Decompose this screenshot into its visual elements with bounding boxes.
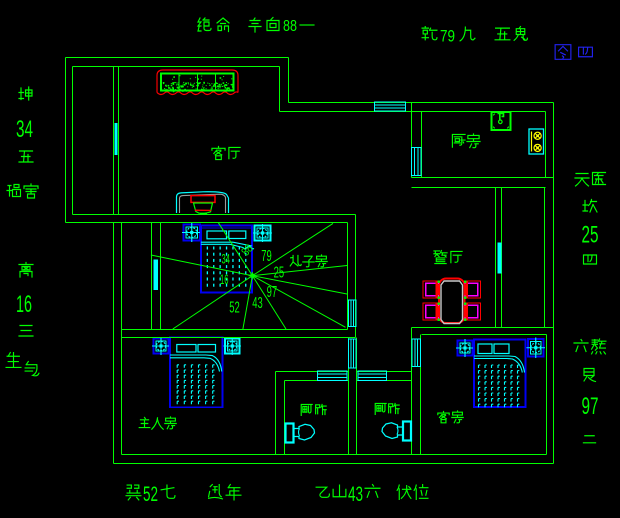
svg-text:25: 25: [274, 265, 285, 282]
svg-text:52: 52: [229, 300, 240, 317]
svg-text:52: 52: [143, 483, 158, 506]
svg-text:97: 97: [267, 284, 278, 301]
svg-text:88: 88: [283, 18, 297, 35]
svg-text:97: 97: [582, 393, 599, 420]
svg-text:34: 34: [222, 251, 231, 266]
svg-text:79: 79: [440, 28, 455, 46]
svg-text:16: 16: [16, 291, 32, 318]
svg-text:25: 25: [582, 222, 599, 249]
svg-text:79: 79: [261, 248, 272, 265]
svg-text:43: 43: [348, 483, 363, 506]
svg-text:43: 43: [252, 295, 262, 312]
svg-text:16: 16: [220, 272, 229, 287]
svg-text:34: 34: [16, 116, 33, 143]
